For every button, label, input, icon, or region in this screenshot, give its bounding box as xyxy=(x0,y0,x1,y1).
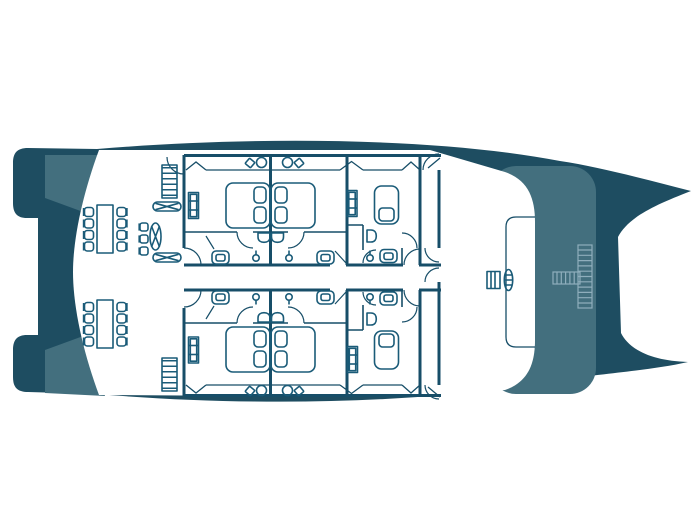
interior-deck xyxy=(73,150,535,397)
catamaran-deck-plan: Catamaran lower deck floor plan xyxy=(0,0,700,525)
